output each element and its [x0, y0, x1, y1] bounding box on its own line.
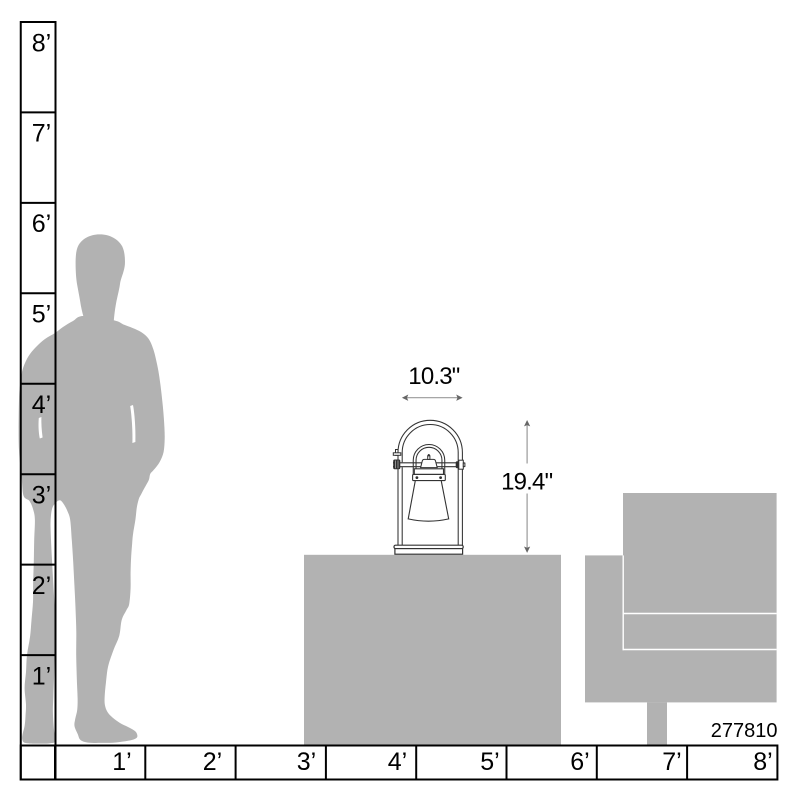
- svg-text:4’: 4’: [388, 748, 407, 776]
- svg-text:6’: 6’: [32, 210, 51, 238]
- svg-text:2’: 2’: [203, 748, 222, 776]
- svg-text:5’: 5’: [32, 301, 51, 329]
- svg-text:5’: 5’: [480, 748, 499, 776]
- svg-text:10.3": 10.3": [408, 363, 460, 390]
- svg-text:19.4": 19.4": [501, 468, 553, 495]
- svg-text:3’: 3’: [32, 482, 51, 510]
- svg-text:7’: 7’: [32, 120, 51, 148]
- svg-text:6’: 6’: [570, 748, 589, 776]
- svg-text:2’: 2’: [32, 572, 51, 600]
- svg-text:7’: 7’: [662, 748, 681, 776]
- svg-text:8’: 8’: [32, 29, 51, 57]
- svg-text:8’: 8’: [753, 748, 772, 776]
- svg-text:277810: 277810: [711, 720, 778, 742]
- svg-text:1’: 1’: [112, 748, 131, 776]
- svg-text:1’: 1’: [32, 662, 51, 690]
- svg-text:4’: 4’: [32, 391, 51, 419]
- svg-text:3’: 3’: [297, 748, 316, 776]
